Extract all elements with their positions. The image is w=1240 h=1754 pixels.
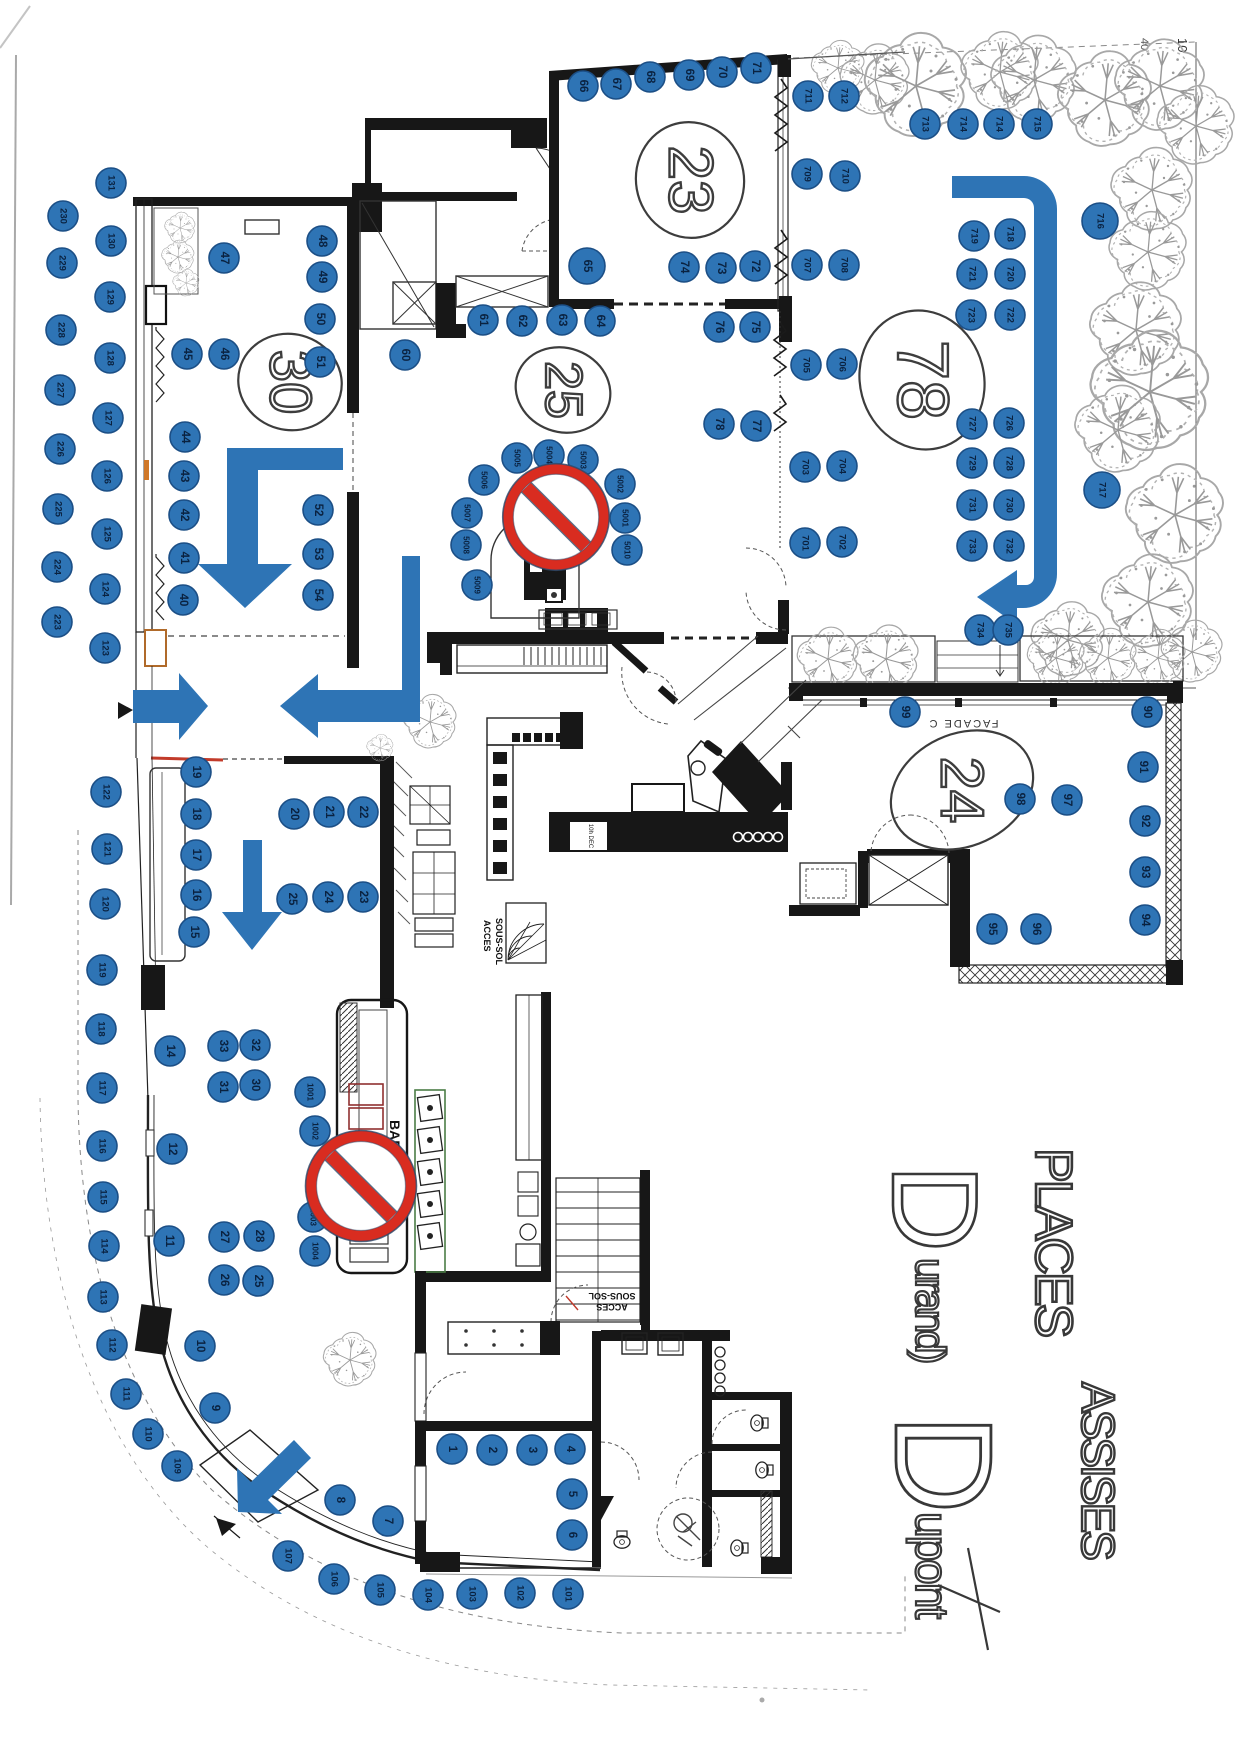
svg-text:PLACES: PLACES [1024,1148,1082,1337]
svg-text:94: 94 [1139,914,1151,927]
svg-text:6: 6 [566,1532,578,1538]
svg-text:5010: 5010 [623,541,632,559]
svg-text:51: 51 [314,356,326,369]
svg-text:23: 23 [656,146,725,215]
svg-text:721: 721 [967,266,978,283]
svg-text:D: D [866,1414,1020,1514]
svg-text:62: 62 [516,315,528,328]
svg-text:712: 712 [839,88,850,104]
svg-text:713: 713 [920,116,931,132]
svg-text:125: 125 [102,526,113,543]
svg-text:731: 731 [967,497,978,514]
svg-text:111: 111 [121,1387,132,1403]
svg-text:18: 18 [190,808,202,821]
svg-text:722: 722 [1005,307,1016,323]
svg-text:103: 103 [467,1586,478,1602]
svg-text:5001: 5001 [621,509,630,527]
svg-text:SOUS-SOL: SOUS-SOL [494,918,504,966]
svg-text:131: 131 [106,175,117,192]
svg-text:30: 30 [249,1079,261,1092]
svg-text:735: 735 [1003,622,1014,639]
svg-text:126: 126 [102,468,113,484]
svg-text:705: 705 [801,357,812,374]
svg-text:19: 19 [190,766,202,779]
svg-text:65: 65 [581,260,593,273]
svg-text:717: 717 [1097,482,1108,498]
svg-text:73: 73 [715,262,727,275]
svg-text:12: 12 [166,1143,178,1156]
svg-text:31: 31 [217,1081,229,1094]
svg-text:5006: 5006 [480,471,489,489]
svg-text:45: 45 [181,348,193,361]
svg-text:24: 24 [929,757,996,824]
svg-text:77: 77 [750,420,762,433]
svg-text:50: 50 [314,313,326,326]
svg-text:43: 43 [178,470,190,483]
svg-text:5004: 5004 [545,446,554,464]
svg-text:SOUS-SOL: SOUS-SOL [588,1291,636,1301]
svg-text:ACCES: ACCES [596,1302,628,1312]
svg-text:72: 72 [749,260,761,273]
svg-text:64: 64 [594,315,606,328]
svg-text:20: 20 [288,808,300,821]
svg-text:117: 117 [97,1080,108,1095]
svg-text:71: 71 [750,62,762,75]
svg-text:7: 7 [382,1518,394,1524]
svg-text:95: 95 [986,923,998,936]
svg-text:3: 3 [526,1447,538,1453]
svg-text:5003: 5003 [579,451,588,469]
svg-text:96: 96 [1030,923,1042,936]
svg-text:44: 44 [179,431,191,444]
svg-text:upont: upont [906,1512,958,1619]
svg-text:229: 229 [57,255,68,271]
svg-text:33: 33 [217,1040,229,1053]
svg-text:53: 53 [312,548,324,561]
svg-text:26: 26 [218,1274,230,1287]
svg-text:112: 112 [107,1337,118,1352]
svg-text:723: 723 [966,307,977,323]
svg-text:41: 41 [178,552,190,565]
svg-text:106: 106 [329,1571,340,1587]
svg-text:124: 124 [100,581,111,598]
svg-text:727: 727 [967,416,978,432]
svg-text:702: 702 [837,534,848,550]
svg-text:42: 42 [178,509,190,522]
svg-text:5008: 5008 [462,536,471,554]
svg-text:25: 25 [286,893,298,906]
svg-text:10h DEC: 10h DEC [587,824,593,849]
svg-text:1: 1 [446,1446,458,1453]
svg-text:93: 93 [1139,866,1151,879]
svg-text:707: 707 [802,257,813,273]
svg-text:61: 61 [477,314,489,327]
svg-text:8: 8 [334,1497,346,1504]
svg-text:223: 223 [52,614,63,630]
svg-text:105: 105 [375,1582,386,1599]
svg-text:97: 97 [1061,794,1073,807]
svg-text:733: 733 [967,538,978,554]
svg-text:ACCES: ACCES [482,920,492,952]
svg-text:123: 123 [100,640,111,656]
svg-text:129: 129 [105,289,116,305]
svg-text:709: 709 [802,166,813,182]
svg-text:226: 226 [55,441,66,457]
svg-text:119: 119 [97,962,108,977]
svg-text:48: 48 [316,235,328,248]
svg-text:121: 121 [102,841,113,858]
svg-text:224: 224 [52,559,63,576]
svg-text:99: 99 [899,706,911,719]
svg-text:715: 715 [1032,116,1043,133]
svg-text:708: 708 [839,257,850,273]
svg-text:22: 22 [357,806,369,819]
svg-text:90: 90 [1141,706,1153,719]
svg-text:23: 23 [357,891,369,904]
svg-text:726: 726 [1004,415,1015,431]
svg-text:729: 729 [967,455,978,471]
svg-text:11: 11 [163,1235,175,1248]
svg-text:40: 40 [177,594,189,607]
svg-text:78: 78 [882,340,962,420]
svg-text:227: 227 [55,382,66,398]
svg-text:714: 714 [994,116,1005,133]
svg-text:27: 27 [218,1231,230,1244]
svg-text:101: 101 [563,1586,574,1603]
svg-text:703: 703 [800,459,811,475]
svg-text:114: 114 [99,1238,110,1254]
svg-text:732: 732 [1004,538,1015,554]
svg-text:54: 54 [312,589,324,602]
svg-text:5: 5 [566,1491,578,1498]
svg-text:720: 720 [1005,266,1016,282]
svg-text:16: 16 [190,889,202,902]
svg-text:63: 63 [556,314,568,327]
svg-text:704: 704 [837,458,848,475]
svg-text:107: 107 [283,1548,294,1564]
svg-text:728: 728 [1004,455,1015,471]
svg-text:719: 719 [969,228,980,244]
svg-text:1002: 1002 [311,1122,320,1140]
svg-text:76: 76 [713,321,725,334]
svg-text:5005: 5005 [513,449,522,467]
svg-text:49: 49 [316,271,328,284]
svg-text:714: 714 [958,116,969,133]
svg-text:urand): urand) [907,1258,954,1362]
svg-text:128: 128 [105,350,116,366]
svg-text:32: 32 [249,1039,261,1052]
svg-text:9: 9 [209,1405,221,1411]
svg-text:230: 230 [58,208,69,224]
svg-text:730: 730 [1004,497,1015,513]
svg-text:122: 122 [101,784,112,800]
svg-text:118: 118 [96,1021,107,1036]
svg-text:52: 52 [312,504,324,517]
svg-text:46: 46 [218,348,230,361]
svg-text:24: 24 [322,891,334,904]
svg-text:5002: 5002 [616,475,625,493]
svg-text:5007: 5007 [463,504,472,522]
svg-text:98: 98 [1014,793,1026,806]
svg-text:78: 78 [713,418,725,431]
svg-text:130: 130 [106,233,117,249]
svg-text:ASSISES: ASSISES [1072,1382,1124,1559]
svg-text:718: 718 [1005,226,1016,242]
svg-text:110: 110 [143,1426,154,1441]
svg-text:91: 91 [1137,761,1149,774]
svg-text:47: 47 [218,252,230,265]
svg-text:74: 74 [678,261,690,274]
svg-text:1004: 1004 [311,1242,320,1260]
svg-text:66: 66 [577,80,589,93]
svg-text:225: 225 [53,501,64,518]
svg-text:1001: 1001 [306,1083,315,1101]
svg-text:116: 116 [97,1138,108,1153]
svg-text:25: 25 [252,1275,264,1288]
svg-text:60: 60 [399,349,411,362]
svg-text:40: 40 [1138,38,1150,50]
svg-text:5009: 5009 [473,576,482,594]
svg-text:21: 21 [323,806,335,819]
svg-text:70: 70 [716,66,728,79]
svg-text:D: D [867,1164,1003,1252]
svg-text:127: 127 [103,410,114,426]
svg-text:113: 113 [98,1289,109,1304]
svg-text:109: 109 [172,1458,183,1474]
svg-text:716: 716 [1095,213,1106,229]
svg-text:FACADE C: FACADE C [927,717,998,729]
svg-text:115: 115 [98,1189,109,1205]
svg-text:69: 69 [683,69,695,82]
svg-text:4: 4 [564,1446,576,1453]
svg-text:15: 15 [188,926,200,939]
svg-text:706: 706 [837,356,848,372]
svg-text:2: 2 [486,1447,498,1453]
svg-text:701: 701 [800,535,811,552]
svg-text:120: 120 [100,896,111,912]
svg-text:10: 10 [194,1340,206,1353]
svg-text:710: 710 [840,168,851,184]
svg-text:28: 28 [253,1230,265,1243]
svg-text:92: 92 [1139,815,1151,828]
svg-text:67: 67 [610,78,622,91]
svg-text:17: 17 [190,849,202,862]
svg-text:25: 25 [534,361,592,419]
svg-text:104: 104 [423,1587,434,1604]
svg-text:228: 228 [56,322,67,338]
svg-text:102: 102 [515,1585,526,1601]
svg-text:734: 734 [975,622,986,639]
svg-text:711: 711 [803,88,814,104]
svg-text:14: 14 [164,1045,176,1058]
svg-text:68: 68 [644,71,656,84]
svg-text:75: 75 [749,321,761,334]
